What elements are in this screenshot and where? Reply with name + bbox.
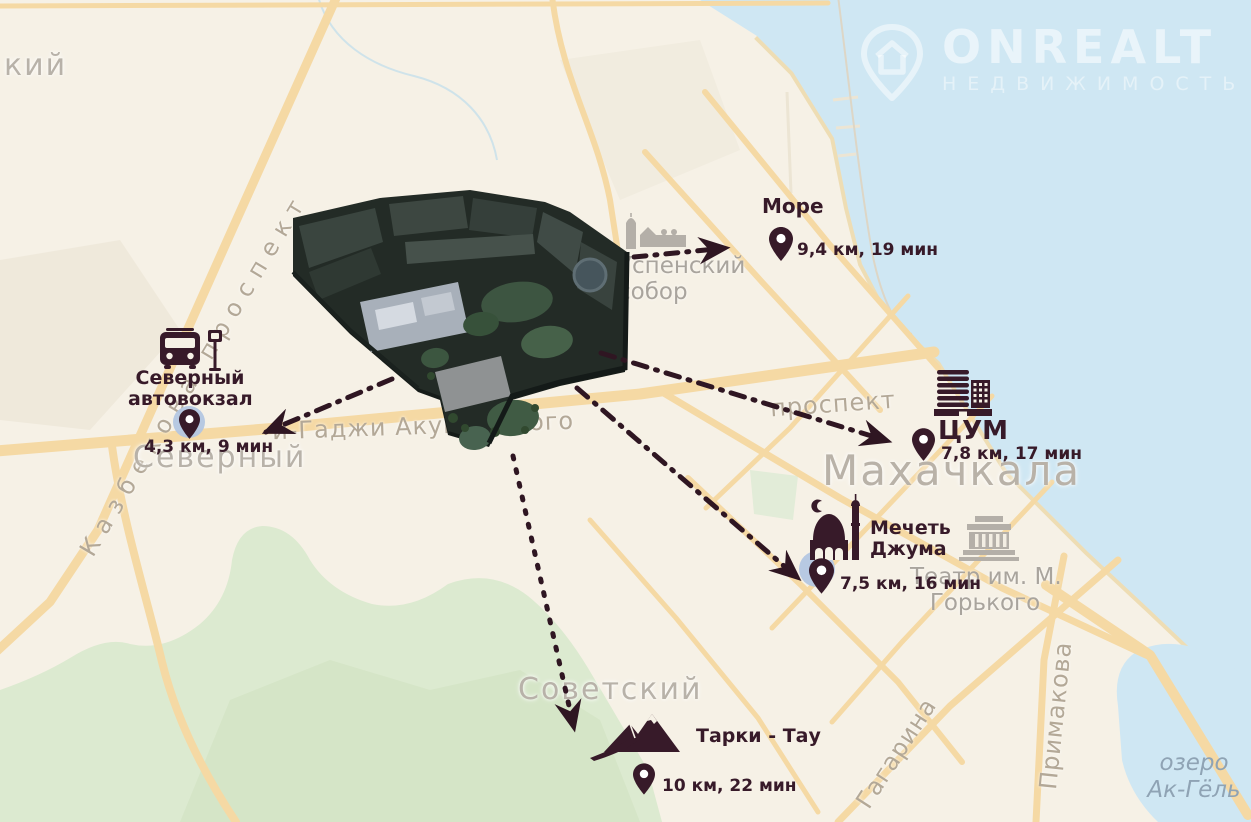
mosque-icon xyxy=(810,492,862,562)
stream xyxy=(318,0,497,160)
complex-plate xyxy=(293,190,627,443)
tarki-tau-distance: 10 км, 22 мин xyxy=(662,776,797,796)
mosque-distance: 7,5 км, 16 мин xyxy=(840,574,981,594)
mountain-icon xyxy=(590,708,686,762)
complex-school xyxy=(360,282,469,352)
street-label-akushinskogo: и-Гаджи Акушинского xyxy=(272,407,575,446)
road-grid xyxy=(590,520,818,812)
arrow-to-mosque xyxy=(577,388,798,578)
road-north xyxy=(552,0,618,252)
complex-edge-dark xyxy=(293,272,418,388)
district-label-sovetsky: Советский xyxy=(518,672,703,707)
district-label-partial: кий xyxy=(4,48,67,83)
cathedral-label-line2: собор xyxy=(618,279,745,305)
bus-station-label-line2: автовокзал xyxy=(128,389,252,410)
street-label-primakova: Примакова xyxy=(1034,640,1077,791)
tsum-distance: 7,8 км, 17 мин xyxy=(941,444,1082,464)
street-label-prospekt: проспект xyxy=(769,386,896,423)
road-top xyxy=(0,3,828,6)
complex-round-building xyxy=(574,259,606,291)
sea-label: Море xyxy=(762,196,824,217)
sea-pin-icon xyxy=(769,227,793,261)
onrealt-logo-icon xyxy=(856,22,928,106)
tsum-pin-icon xyxy=(912,428,935,461)
complex-plaza xyxy=(435,356,511,412)
onrealt-brand: ONREALT xyxy=(942,22,1246,72)
mosque-label-line2: Джума xyxy=(870,539,951,560)
bus-station-label-line1: Северный xyxy=(128,368,252,389)
street-label-gagarina: Гагарина xyxy=(850,693,942,814)
tsum-label: ЦУМ xyxy=(938,416,1008,446)
complex-shadow xyxy=(293,194,627,447)
theater-poi: Театр им. М. Горького xyxy=(950,516,1060,616)
mosque-pin-icon xyxy=(809,558,834,594)
onrealt-logo-text: ONREALT НЕДВИЖИМОСТЬ xyxy=(942,22,1246,95)
bus-station-distance: 4,3 км, 9 мин xyxy=(144,437,273,457)
cathedral-icon xyxy=(618,213,688,251)
lake-label-line2: Ак-Гёль xyxy=(1138,777,1250,804)
mosque-label-line1: Мечеть xyxy=(870,518,951,539)
stream xyxy=(560,250,598,330)
complex-buildings xyxy=(299,196,617,310)
marketing-map: кий Казбекова проспект и-Гаджи Акушинско… xyxy=(0,0,1251,822)
complex-sport-court xyxy=(491,292,518,310)
land-patch xyxy=(560,40,740,200)
onrealt-logo: ONREALT НЕДВИЖИМОСТЬ xyxy=(856,22,1246,106)
bus-station-pin-icon xyxy=(179,409,200,439)
cathedral-poi: Успенский собор xyxy=(618,213,745,305)
green-patch xyxy=(750,470,798,520)
lake-label: озеро Ак-Гёль xyxy=(1138,750,1250,804)
cathedral-label-line1: Успенский xyxy=(618,253,745,279)
sea-distance: 9,4 км, 19 мин xyxy=(797,240,938,260)
tarki-tau-pin-icon xyxy=(633,763,655,795)
onrealt-tagline: НЕДВИЖИМОСТЬ xyxy=(942,73,1246,95)
breakwater xyxy=(787,92,791,193)
theater-icon xyxy=(958,516,1020,562)
tsum-icon xyxy=(934,368,992,418)
lake-label-line1: озеро xyxy=(1138,750,1250,777)
tarki-tau-label: Тарки - Тау xyxy=(696,726,821,747)
